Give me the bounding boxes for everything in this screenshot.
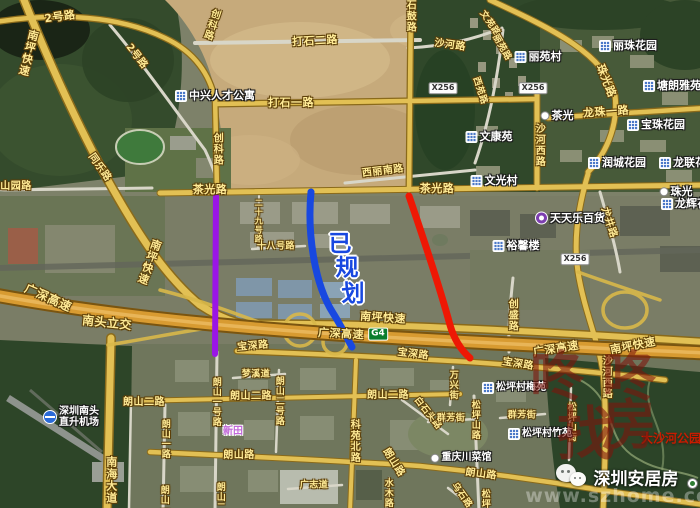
road-name-label: 宝深路 xyxy=(237,340,269,353)
road-name-label: 沙河西路 xyxy=(533,123,544,167)
road-name-label: 2号路 xyxy=(123,43,149,72)
road-name-label: 朗山一路 xyxy=(158,485,167,508)
road-name-label: 朗山路 xyxy=(380,447,406,479)
road-name-label: 群芳街 xyxy=(508,411,537,420)
road-name-label: 南海大道 xyxy=(105,456,117,504)
place-label: 裕馨楼 xyxy=(493,240,540,252)
road-name-label: 梦溪道 xyxy=(242,370,271,379)
place-label: 龙联花园 xyxy=(659,157,700,169)
road-name-label: 南坪快速 xyxy=(360,311,407,326)
place-label: 丽珠花园 xyxy=(599,40,657,52)
road-name-label: 丽苑路 xyxy=(490,33,512,62)
building-icon xyxy=(508,428,520,440)
place-label: 文光村 xyxy=(471,175,518,187)
place-label: 龙辉花园 xyxy=(661,198,700,210)
road-name-label: 群芳街 xyxy=(437,414,466,423)
satellite-map-canvas[interactable]: 2号路南坪快速2号路创科路打石二路沙河路石鼓路文苑路丽苑路西苑路打石一路创科路珠… xyxy=(0,0,700,508)
place-label: 茶光 xyxy=(541,110,574,122)
road-name-label: 朗山二路 xyxy=(367,391,409,402)
road-name-label: 朗山二号路 xyxy=(214,482,223,508)
building-icon xyxy=(515,51,527,63)
road-name-label: 珠光路 xyxy=(594,63,618,99)
road-name-label: 朗山二路 xyxy=(123,398,165,409)
building-icon xyxy=(482,382,494,394)
road-name-label: 同乐路 xyxy=(86,152,113,184)
road-name-label: 乌石路 xyxy=(449,482,473,508)
place-label: 润城花园 xyxy=(588,157,646,169)
county-road-badge: X256 xyxy=(561,253,590,265)
road-name-label: 宝深路 xyxy=(397,348,430,362)
place-label: 重庆川菜馆 xyxy=(431,453,492,464)
planned-annotation-char: 划 xyxy=(342,274,365,308)
road-name-label: 2号路 xyxy=(44,9,76,25)
road-name-label: 西丽南路 xyxy=(362,164,405,180)
road-name-label: 西苑路 xyxy=(470,76,488,106)
building-icon xyxy=(643,80,655,92)
building-icon xyxy=(627,119,639,131)
building-icon xyxy=(466,131,478,143)
road-name-label: 朗山一号路 xyxy=(210,377,219,427)
road-name-label: 松坪 xyxy=(479,489,488,508)
county-road-badge: X256 xyxy=(519,82,548,94)
place-label: 新田 xyxy=(223,427,243,438)
wechat-bubble-small xyxy=(570,472,586,486)
place-label: 塘朗雅苑 xyxy=(643,80,700,92)
dot-icon xyxy=(660,187,669,196)
heli-icon xyxy=(43,410,57,424)
road-name-label: 创科路 xyxy=(200,7,220,42)
road-name-label: 南头立交 xyxy=(81,314,132,332)
road-name-label: 创盛路 xyxy=(506,299,517,332)
road-name-label: 广深高速 xyxy=(318,327,365,341)
brand-watermark-char: 房 xyxy=(602,381,656,460)
road-name-label: 茶光路 xyxy=(420,183,455,195)
store-icon xyxy=(535,212,548,225)
building-icon xyxy=(661,198,673,210)
road-name-label: 水木路 xyxy=(382,478,391,508)
place-label: 文康苑 xyxy=(466,131,513,143)
building-icon xyxy=(659,157,671,169)
road-name-label: 朗山路 xyxy=(223,451,255,462)
place-label: 天天乐百货 xyxy=(535,212,605,225)
road-name-label: 广深高速 xyxy=(23,282,74,314)
building-icon xyxy=(493,240,505,252)
road-name-label: 朗山路 xyxy=(465,468,498,482)
road-name-label: 科苑北路 xyxy=(348,419,359,463)
road-name-label: 万兴街 xyxy=(447,370,456,400)
road-name-label: 南坪快速 xyxy=(17,28,40,77)
road-name-label: 山园路 xyxy=(0,182,32,193)
road-name-label: 南坪快速 xyxy=(135,237,162,286)
road-name-label: 朗山一路 xyxy=(159,419,168,459)
place-label: 中兴人才公寓 xyxy=(175,90,255,102)
road-name-label: 十八号路 xyxy=(257,242,295,251)
building-icon xyxy=(588,157,600,169)
place-label: 宝珠花园 xyxy=(627,119,685,131)
building-icon xyxy=(471,175,483,187)
county-road-badge: X256 xyxy=(429,82,458,94)
website-watermark: www.szhome.com xyxy=(525,485,700,507)
road-name-label: 广志道 xyxy=(300,481,329,490)
park-poi-icon xyxy=(687,478,698,489)
building-icon xyxy=(599,40,611,52)
road-name-label: 石鼓路 xyxy=(404,0,415,33)
map-labels-layer: 2号路南坪快速2号路创科路打石二路沙河路石鼓路文苑路丽苑路西苑路打石一路创科路珠… xyxy=(0,0,700,508)
dot-icon xyxy=(541,111,550,120)
road-name-label: 二十九号路 xyxy=(254,199,262,244)
road-name-label: 龙珠一路 xyxy=(583,105,630,120)
road-name-label: 松坪山路 xyxy=(469,400,478,440)
road-name-label: 创科路 xyxy=(211,133,222,166)
road-name-label: 朗山二号路 xyxy=(273,376,282,426)
place-label: 深圳南头直升机场 xyxy=(43,406,99,428)
road-name-label: 茶光路 xyxy=(193,184,228,196)
dot-icon xyxy=(431,454,440,463)
building-icon xyxy=(175,90,187,102)
highway-number-badge: G4 xyxy=(368,328,388,341)
place-label: 丽苑村 xyxy=(515,51,562,63)
road-name-label: 朗山二路 xyxy=(230,392,272,403)
road-name-label: 沙河路 xyxy=(434,39,467,54)
road-name-label: 打石一路 xyxy=(268,97,314,109)
road-name-label: 打石二路 xyxy=(292,34,339,48)
